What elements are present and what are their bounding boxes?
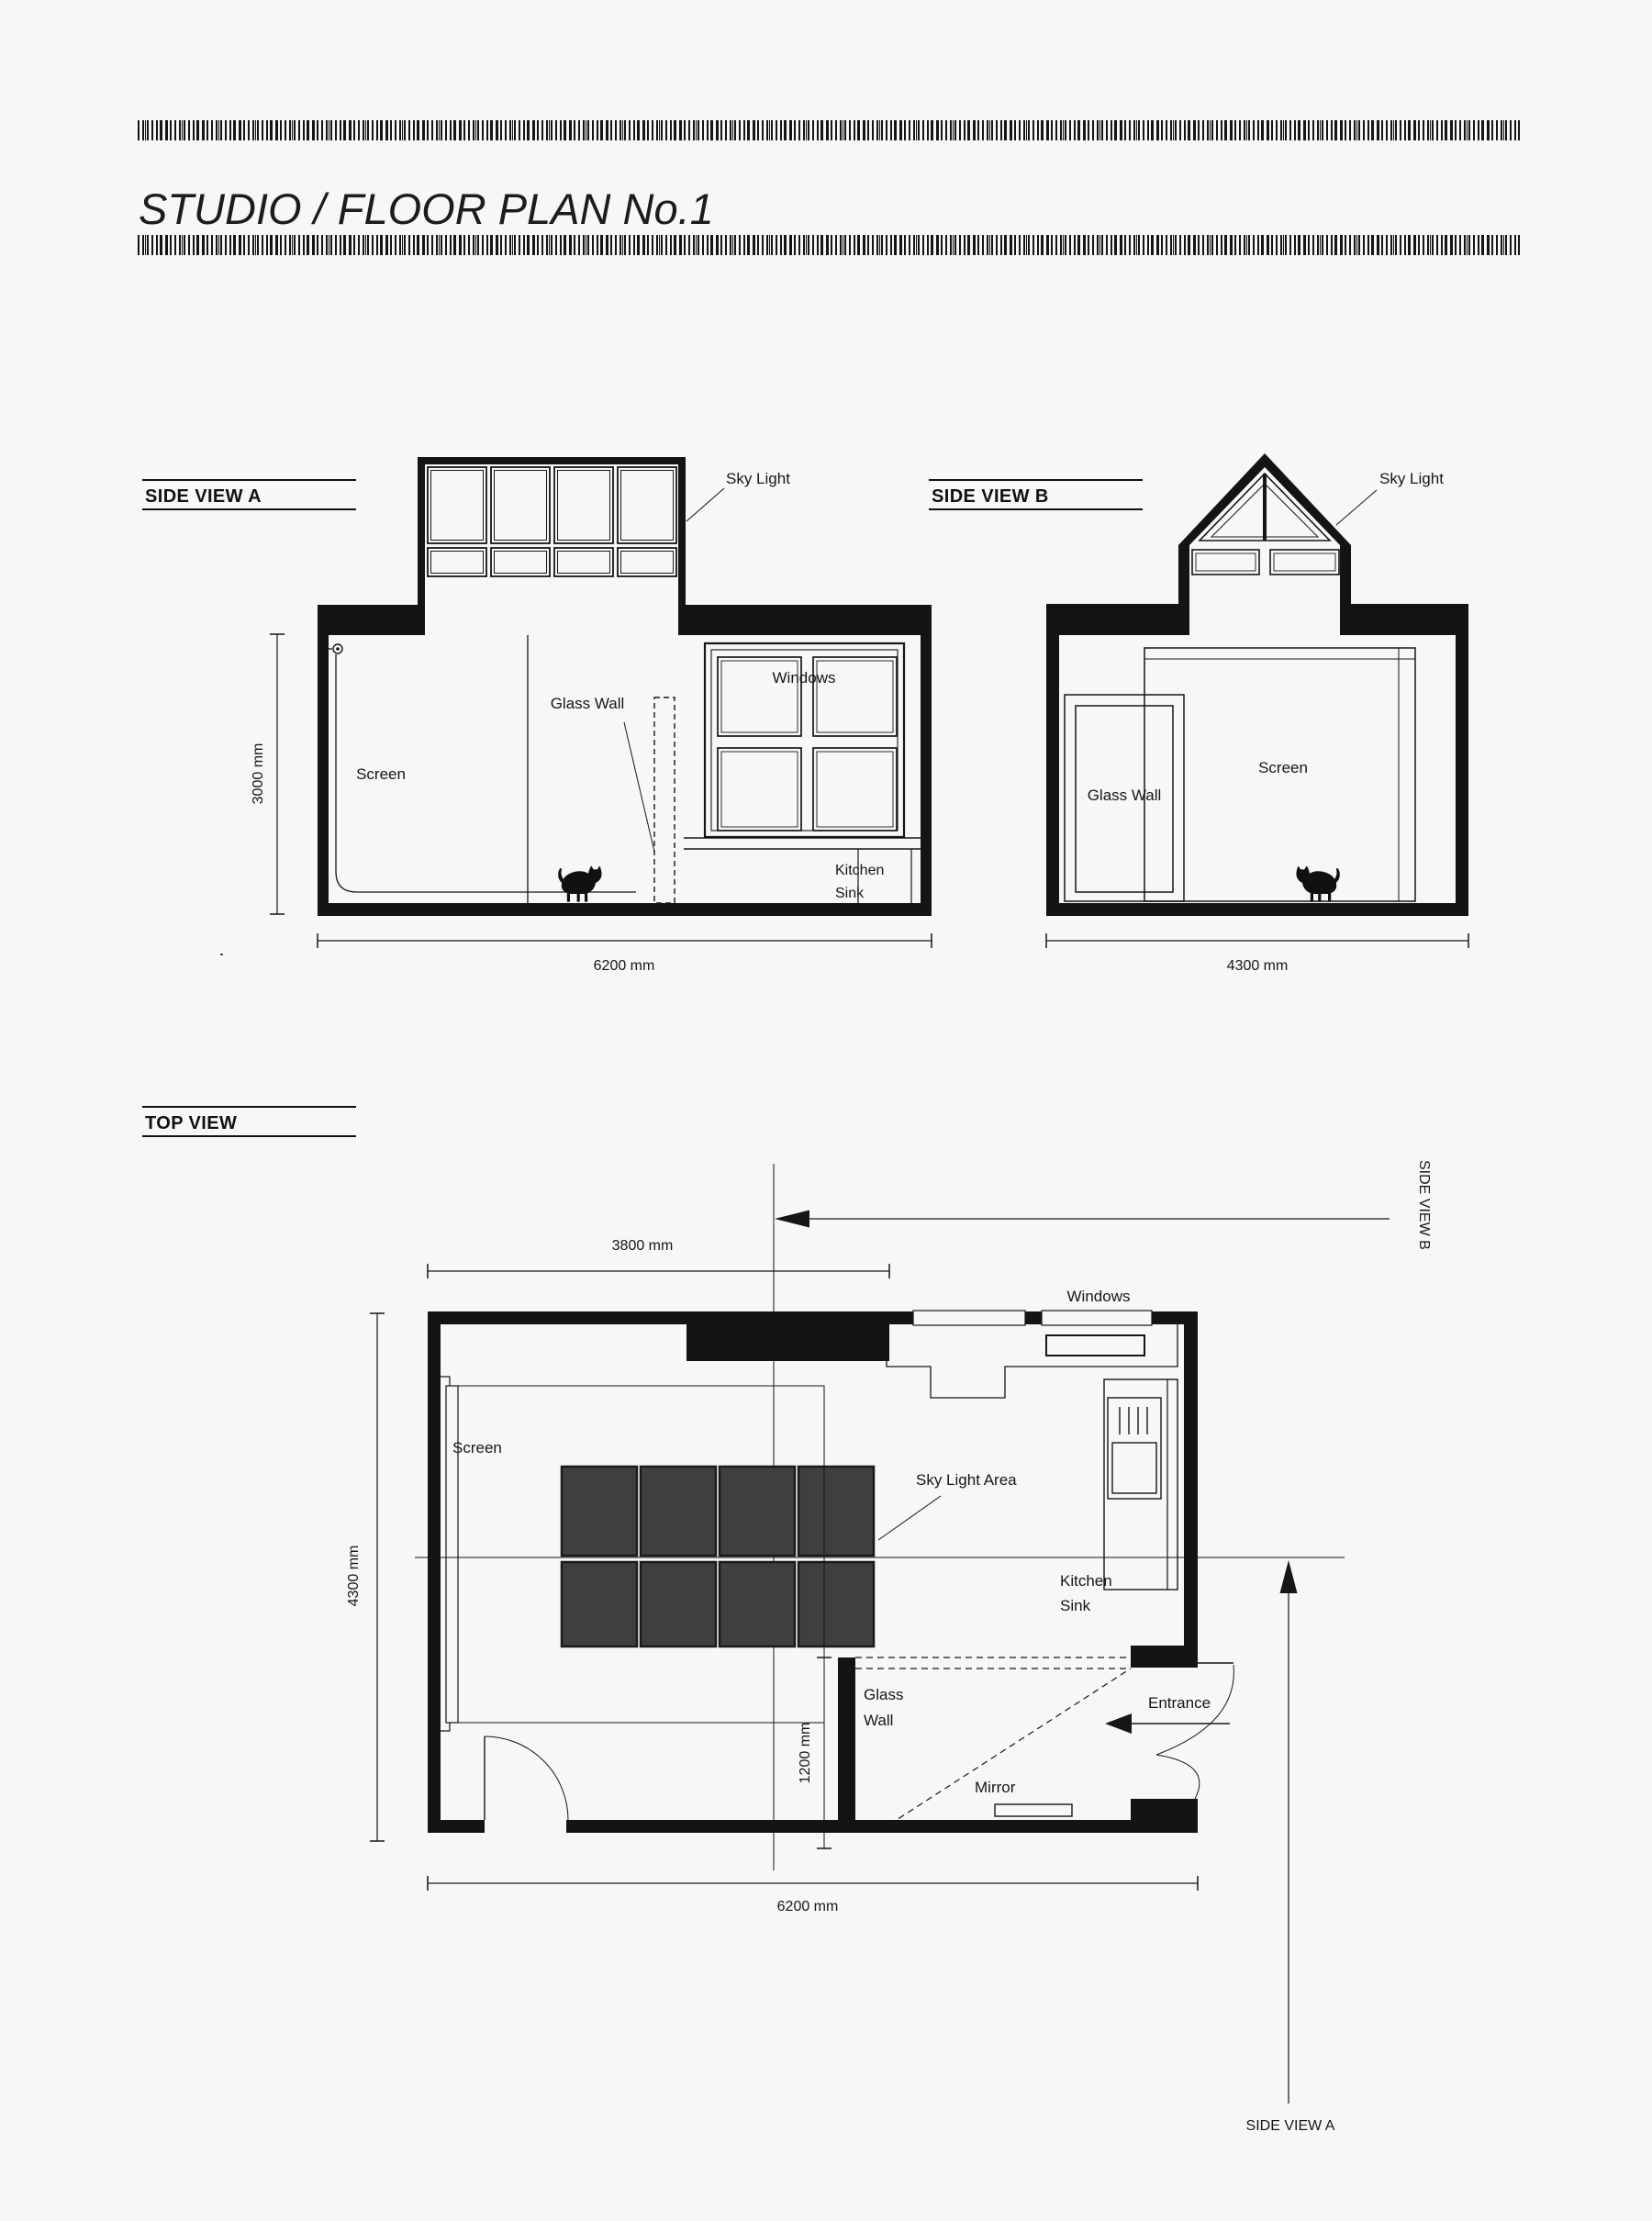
side-a-kitchen-label: Kitchen [835, 863, 884, 878]
side-a-width-dimension: 6200 mm [318, 933, 932, 974]
top-skylight-area [562, 1467, 874, 1646]
top-mirror-label: Mirror [975, 1779, 1016, 1796]
top-wall-label: Wall [864, 1712, 893, 1729]
side-a-height-dim-label: 3000 mm [251, 743, 266, 805]
side-b-glass-wall-label: Glass Wall [1088, 787, 1162, 804]
top-side-view-a-marker: SIDE VIEW A [1246, 2118, 1335, 2134]
top-view-drawing: SIDE VIEW B SIDE VIEW A [330, 1147, 1473, 2143]
side-a-skylight-label: Sky Light [726, 470, 790, 487]
top-windows-label: Windows [1067, 1288, 1131, 1305]
top-view-underline [142, 1135, 356, 1137]
floor-plan-sheet: { "page": { "title": "STUDIO / FLOOR PLA… [0, 0, 1652, 2221]
side-b-skylight-leader [1336, 490, 1377, 525]
side-view-b-sightline: SIDE VIEW B [775, 1160, 1432, 1250]
top-width-6200-dimension: 6200 mm [428, 1876, 1198, 1914]
top-1200-dim-label: 1200 mm [798, 1723, 813, 1784]
side-a-skylight-leader [686, 488, 724, 521]
top-entrance-label: Entrance [1148, 1694, 1211, 1712]
side-a-glass-wall-label: Glass Wall [551, 695, 625, 712]
side-a-windows-label: Windows [773, 669, 836, 686]
top-glass-label: Glass [864, 1686, 903, 1703]
top-view-overline [142, 1106, 356, 1108]
side-a-screen-label: Screen [356, 765, 406, 783]
side-a-height-dimension: 3000 mm [251, 634, 285, 914]
side-a-width-dim-label: 6200 mm [594, 958, 655, 974]
top-entrance-door [1156, 1663, 1233, 1799]
side-view-a-drawing: 3000 mm 6200 mm Sky Light Glass Wall Win… [220, 439, 996, 989]
side-a-sink-label: Sink [835, 886, 865, 901]
top-sink-label: Sink [1060, 1597, 1091, 1614]
top-screen-label: Screen [452, 1439, 502, 1456]
side-b-walls [1046, 453, 1468, 916]
top-height-4300-dimension: 4300 mm [346, 1313, 385, 1841]
top-mirror [995, 1804, 1072, 1816]
side-a-walls [318, 457, 932, 916]
top-kitchen-counter [1104, 1379, 1178, 1590]
hatch-band-top [138, 120, 1520, 140]
top-left-door [485, 1736, 568, 1820]
top-4300-dim-label: 4300 mm [346, 1546, 362, 1607]
entrance-arrow [1105, 1713, 1230, 1734]
side-b-screen-label: Screen [1258, 759, 1308, 776]
page-title: STUDIO / FLOOR PLAN No.1 [139, 184, 714, 234]
top-6200-dim-label: 6200 mm [777, 1899, 839, 1914]
hatch-band-bottom [138, 235, 1520, 255]
top-view-heading: TOP VIEW [145, 1113, 237, 1134]
side-view-a-sightline: SIDE VIEW A [1246, 1560, 1335, 2134]
side-b-skylight-label: Sky Light [1379, 470, 1444, 487]
side-b-width-dimension: 4300 mm [1046, 933, 1468, 974]
top-skylight-area-leader [878, 1496, 941, 1540]
top-glass-wall-dashed [855, 1657, 1131, 1825]
top-3800-dim-label: 3800 mm [612, 1238, 674, 1254]
top-kitchen-label: Kitchen [1060, 1572, 1112, 1590]
top-side-view-b-marker: SIDE VIEW B [1416, 1160, 1432, 1250]
side-b-width-dim-label: 4300 mm [1227, 958, 1289, 974]
side-view-b-drawing: 4300 mm Sky Light Glass Wall Screen [1005, 430, 1524, 989]
top-skylight-area-label: Sky Light Area [916, 1471, 1017, 1489]
top-width-3800-dimension: 3800 mm [428, 1238, 889, 1278]
